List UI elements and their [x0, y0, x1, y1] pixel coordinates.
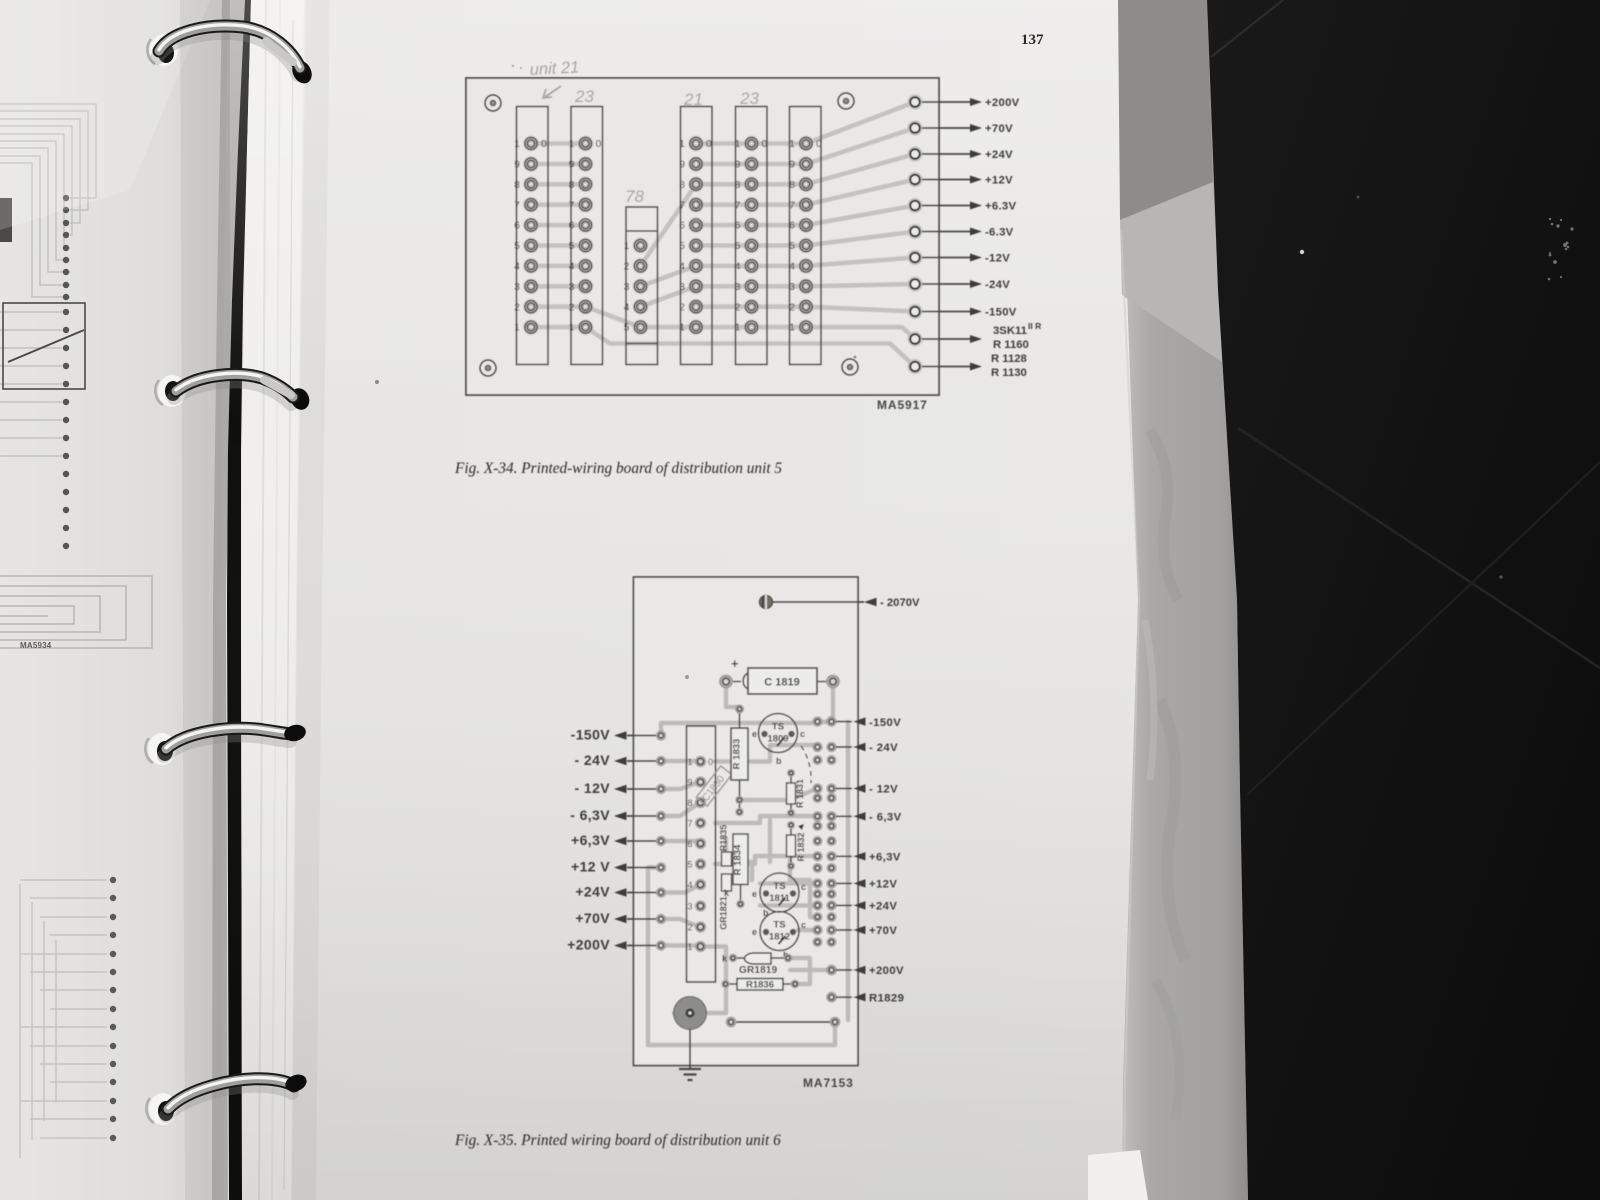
svg-text:unit 21: unit 21	[529, 58, 579, 79]
svg-text:8: 8	[679, 179, 685, 191]
svg-text:2: 2	[514, 301, 520, 313]
svg-text:137: 137	[1021, 32, 1044, 48]
svg-text:2: 2	[679, 301, 685, 313]
svg-text:R 1831: R 1831	[795, 779, 805, 808]
svg-text:3: 3	[514, 281, 520, 293]
svg-text:- 2070V: - 2070V	[880, 597, 920, 609]
svg-text:-24V: -24V	[985, 279, 1010, 291]
svg-text:e: e	[752, 729, 757, 739]
svg-text:-6.3V: -6.3V	[985, 227, 1014, 239]
svg-text:4: 4	[624, 301, 630, 313]
svg-text:MA5934: MA5934	[20, 641, 52, 650]
svg-text:- 6,3V: - 6,3V	[570, 807, 610, 823]
svg-text:+12V: +12V	[985, 175, 1013, 187]
svg-text:MA7153: MA7153	[803, 1076, 854, 1090]
svg-text:7: 7	[687, 818, 692, 828]
svg-text:21: 21	[683, 90, 703, 109]
svg-text:1: 1	[624, 240, 630, 252]
svg-text:- 12V: - 12V	[575, 780, 611, 796]
svg-text:2: 2	[624, 261, 630, 273]
svg-text:4: 4	[569, 261, 575, 273]
svg-text:7: 7	[514, 199, 520, 211]
svg-text:1: 1	[514, 138, 520, 150]
svg-text:1812: 1812	[769, 932, 790, 943]
svg-text:+12 V: +12 V	[571, 859, 610, 875]
svg-text:1: 1	[679, 138, 685, 150]
svg-text:b: b	[776, 756, 782, 766]
svg-text:1: 1	[789, 322, 795, 334]
svg-text:6: 6	[687, 839, 692, 849]
svg-text:9: 9	[687, 777, 692, 787]
svg-text:8: 8	[735, 179, 741, 191]
svg-text:4: 4	[789, 261, 795, 273]
svg-text:1: 1	[789, 138, 795, 150]
svg-text:7: 7	[569, 199, 575, 211]
svg-text:- 24V: - 24V	[869, 742, 898, 754]
svg-text:+70V: +70V	[869, 925, 897, 937]
svg-text:+200V: +200V	[869, 965, 904, 977]
svg-text:R 1130: R 1130	[991, 367, 1027, 379]
svg-text:3SK11: 3SK11	[993, 325, 1027, 337]
svg-text:4: 4	[735, 261, 741, 273]
svg-text:- 24V: - 24V	[575, 752, 611, 768]
svg-text:+24V: +24V	[869, 901, 897, 913]
svg-text:-150V: -150V	[571, 727, 611, 743]
svg-text:7: 7	[789, 199, 795, 211]
svg-text:8: 8	[514, 179, 520, 191]
svg-text:6: 6	[789, 220, 795, 232]
svg-text:+6,3V: +6,3V	[869, 852, 901, 864]
svg-text:2: 2	[569, 301, 575, 313]
svg-text:+: +	[731, 656, 739, 671]
svg-text:R 1833: R 1833	[732, 739, 743, 770]
svg-text:6: 6	[514, 220, 520, 232]
svg-text:5: 5	[624, 322, 630, 334]
svg-text:1: 1	[569, 138, 575, 150]
svg-text:+12V: +12V	[869, 879, 897, 891]
svg-text:3: 3	[569, 281, 575, 293]
svg-text:TS: TS	[772, 722, 784, 733]
svg-text:2: 2	[687, 922, 692, 932]
svg-text:3: 3	[735, 281, 741, 293]
svg-text:9: 9	[679, 159, 685, 171]
svg-text:9: 9	[735, 159, 741, 171]
svg-text:3: 3	[687, 901, 692, 911]
svg-text:23: 23	[574, 87, 594, 106]
svg-text:0: 0	[762, 138, 768, 150]
svg-text:+70V: +70V	[575, 910, 610, 926]
svg-text:C 1819: C 1819	[764, 677, 799, 689]
svg-text:4: 4	[514, 261, 520, 273]
svg-text:23: 23	[739, 89, 759, 108]
svg-text:3: 3	[789, 281, 795, 293]
svg-text:+6,3V: +6,3V	[571, 832, 610, 848]
svg-text:II R: II R	[1028, 321, 1041, 331]
svg-text:0: 0	[541, 138, 547, 150]
svg-text:6: 6	[735, 220, 741, 232]
svg-text:1: 1	[687, 757, 692, 767]
svg-text:+200V: +200V	[985, 97, 1020, 109]
svg-text:1809: 1809	[767, 734, 788, 745]
svg-text:4: 4	[687, 880, 692, 890]
svg-text:9: 9	[569, 159, 575, 171]
svg-text:+6.3V: +6.3V	[985, 201, 1017, 213]
svg-text:7: 7	[735, 199, 741, 211]
svg-text:1: 1	[687, 942, 692, 952]
svg-text:2: 2	[735, 301, 741, 313]
svg-text:+24V: +24V	[575, 884, 610, 900]
svg-text:9: 9	[789, 159, 795, 171]
svg-text:1: 1	[735, 322, 741, 334]
svg-text:5: 5	[514, 240, 520, 252]
svg-text:5: 5	[789, 240, 795, 252]
svg-text:c: c	[800, 729, 805, 739]
svg-text:+70V: +70V	[985, 123, 1013, 135]
svg-text:78: 78	[625, 187, 644, 206]
svg-text:0: 0	[706, 138, 712, 150]
svg-text:6: 6	[569, 220, 575, 232]
svg-text:R 1160: R 1160	[993, 339, 1029, 351]
svg-text:5: 5	[569, 240, 575, 252]
svg-text:-150V: -150V	[869, 717, 901, 729]
svg-text:R 1832: R 1832	[796, 832, 806, 861]
svg-text:R1835: R1835	[719, 825, 729, 852]
svg-text:8: 8	[569, 179, 575, 191]
svg-text:9: 9	[514, 159, 520, 171]
svg-text:Fig. X-35. Printed wiring boar: Fig. X-35. Printed wiring board of distr…	[454, 1132, 781, 1149]
svg-text:e: e	[752, 889, 757, 899]
svg-text:TS: TS	[773, 881, 785, 892]
svg-text:1: 1	[679, 322, 685, 334]
svg-text:2: 2	[789, 301, 795, 313]
svg-text:e: e	[752, 927, 757, 937]
svg-text:0: 0	[816, 138, 822, 150]
svg-text:4: 4	[679, 261, 685, 273]
svg-text:R 1128: R 1128	[991, 353, 1027, 365]
svg-text:6: 6	[679, 220, 685, 232]
svg-text:7: 7	[679, 199, 685, 211]
svg-text:c: c	[801, 882, 806, 892]
svg-text:R1829: R1829	[869, 992, 904, 1004]
svg-text:Fig. X-34. Printed-wiring boar: Fig. X-34. Printed-wiring board of distr…	[454, 460, 782, 477]
svg-text:GR1819: GR1819	[739, 965, 778, 976]
svg-text:R1836: R1836	[746, 980, 774, 991]
svg-text:8: 8	[789, 179, 795, 191]
svg-text:3: 3	[624, 281, 630, 293]
svg-text:1811: 1811	[769, 893, 790, 904]
svg-text:3: 3	[679, 281, 685, 293]
svg-text:+200V: +200V	[567, 937, 610, 953]
svg-text:-12V: -12V	[985, 253, 1010, 265]
svg-text:- 12V: - 12V	[869, 784, 898, 796]
svg-text:1: 1	[735, 138, 741, 150]
svg-text:+24V: +24V	[985, 149, 1013, 161]
svg-text:MA5917: MA5917	[877, 398, 928, 412]
svg-text:R 1834: R 1834	[733, 844, 744, 875]
svg-text:1: 1	[569, 322, 575, 334]
svg-text:0: 0	[708, 757, 713, 767]
svg-text:TS: TS	[773, 920, 785, 931]
svg-text:5: 5	[679, 240, 685, 252]
svg-text:5: 5	[735, 240, 741, 252]
svg-text:-150V: -150V	[985, 307, 1017, 319]
svg-text:8: 8	[687, 798, 692, 808]
svg-text:- 6,3V: - 6,3V	[869, 812, 902, 824]
svg-text:c: c	[801, 920, 806, 930]
svg-text:5: 5	[687, 859, 692, 869]
svg-text:1: 1	[514, 322, 520, 334]
svg-text:0: 0	[596, 138, 602, 150]
svg-text:GR1821: GR1821	[719, 896, 729, 930]
